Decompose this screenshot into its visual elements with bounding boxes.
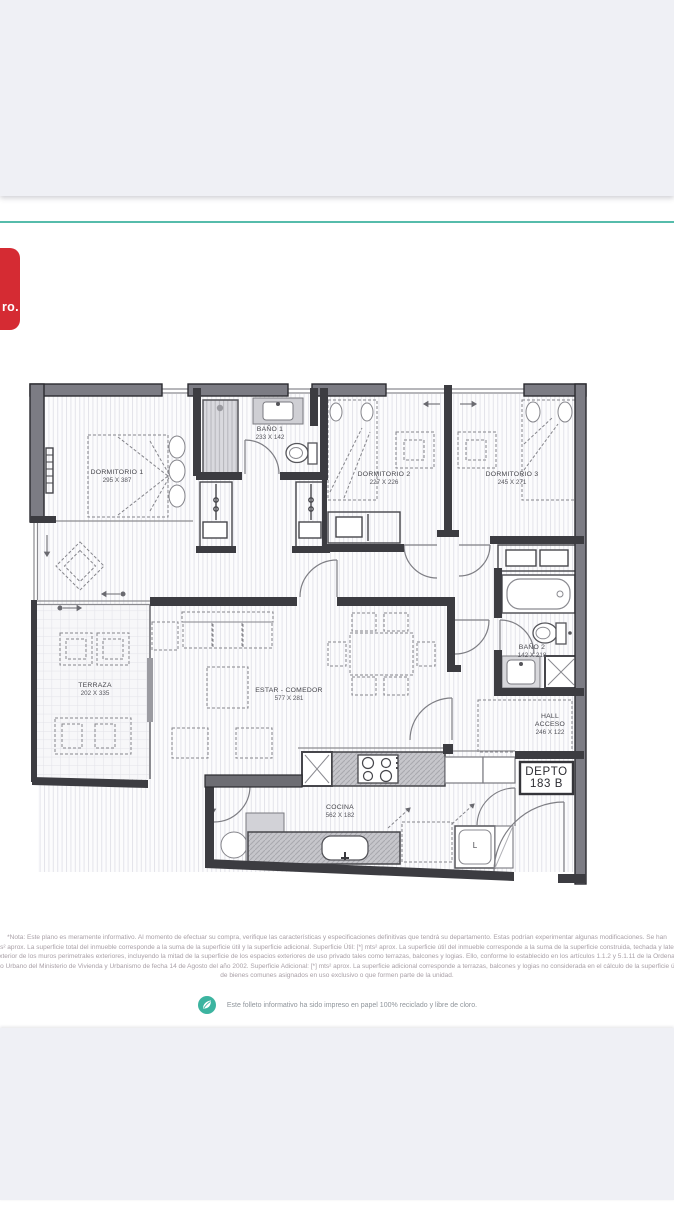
room-label-bano-2: BAÑO 2 142 X 218 [495,644,569,659]
room-label-dormitorio-2: DORMITORIO 2 227 X 226 [324,471,444,486]
eco-note: Este folleto informativo ha sido impreso… [0,995,674,1015]
disclaimer-line: mts² aprox. La superficie total del inmu… [0,943,674,953]
room-label-terraza: TERRAZA 202 X 335 [55,682,135,697]
room-label-bano-1: BAÑO 1 233 X 142 [233,426,307,441]
room-label-dormitorio-1: DORMITORIO 1 295 X 387 [57,469,177,484]
floor-plan-drawing [0,0,674,1200]
disclaimer-block: *Nota: Este plano es meramente informati… [0,933,674,991]
recycled-paper-icon [197,995,217,1015]
floor-plan: DORMITORIO 1 295 X 387 BAÑO 1 233 X 142 … [0,0,674,1200]
room-label-cocina: COCINA 562 X 182 [290,804,390,819]
unit-label: DEPTO 183 B [520,762,573,794]
room-label-dormitorio-3: DORMITORIO 3 245 X 271 [452,471,572,486]
room-label-estar-comedor: ESTAR - COMEDOR 577 X 281 [229,687,349,702]
disclaimer-line: oto Urbano del Ministerio de Vivienda y … [0,962,674,972]
disclaimer-line: *Nota: Este plano es meramente informati… [0,933,674,943]
room-label-hall-acceso: HALL ACCESO 246 X 122 [526,713,574,736]
disclaimer-line: al exterior de los muros perimetrales ex… [0,952,674,962]
disclaimer-line: de bienes comunes asignados en uso exclu… [0,971,674,981]
washer-label: L [464,841,486,850]
eco-note-text: Este folleto informativo ha sido impreso… [227,1002,477,1009]
